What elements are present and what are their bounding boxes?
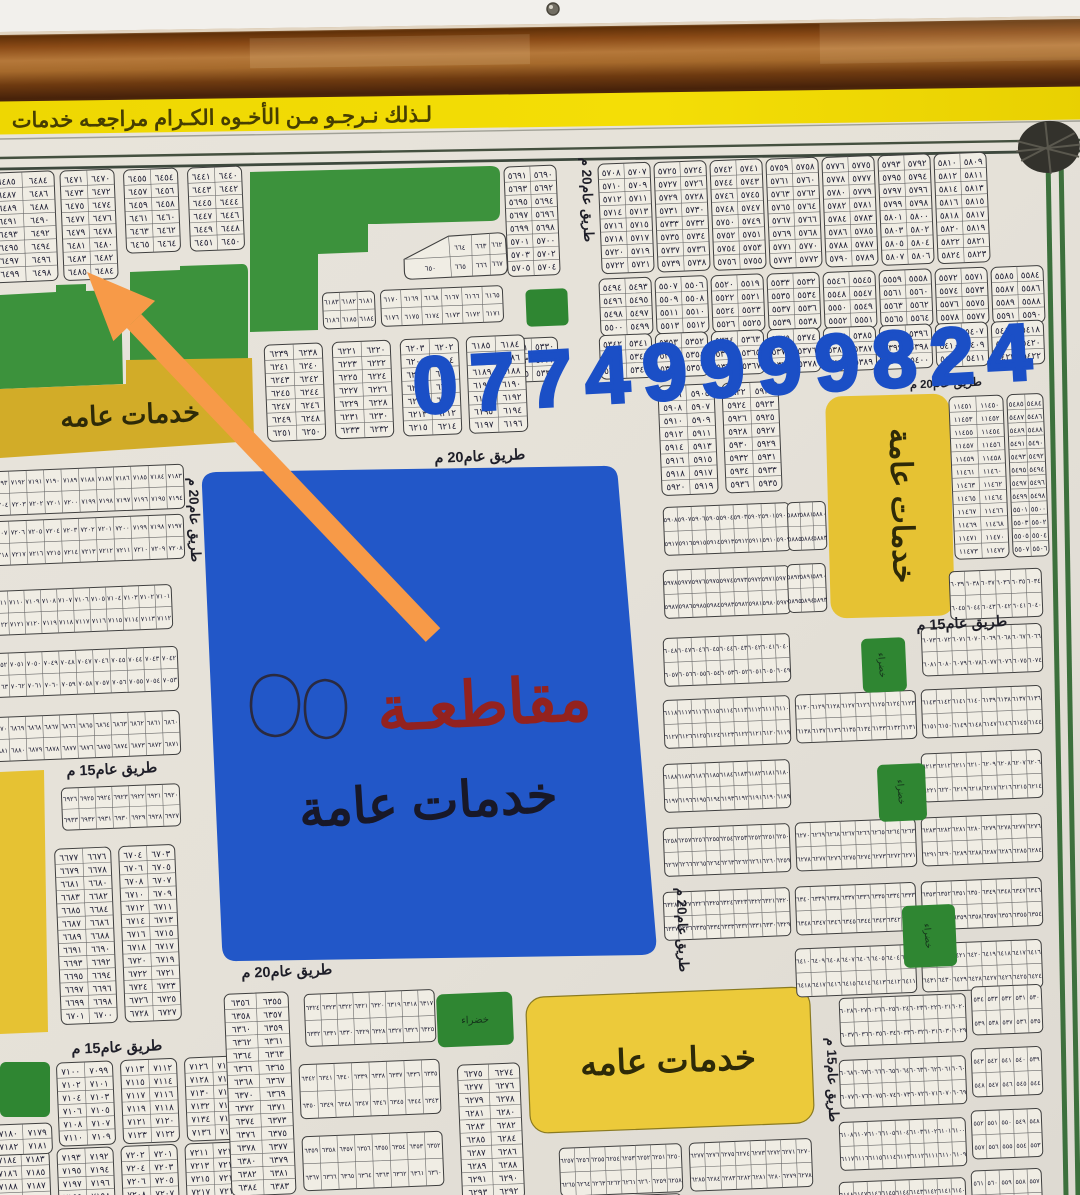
svg-text:خضراء: خضراء — [461, 1014, 489, 1026]
svg-text:مقاطعـة: مقاطعـة — [375, 664, 592, 744]
svg-text:خدمات عامه: خدمات عامه — [579, 1039, 756, 1084]
svg-text:خدمات عامة: خدمات عامة — [883, 428, 920, 584]
svg-text:خدمات عامه: خدمات عامه — [60, 397, 201, 433]
